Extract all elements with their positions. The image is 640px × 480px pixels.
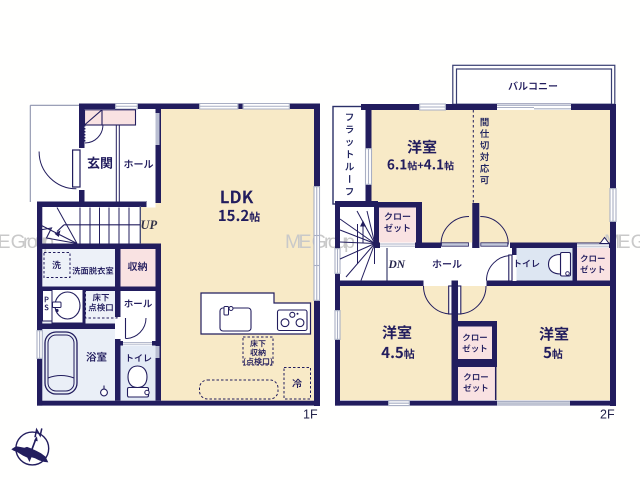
svg-text:1F: 1F <box>303 407 318 421</box>
svg-text:DN: DN <box>388 259 406 271</box>
svg-text:ME Group: ME Group <box>604 231 640 253</box>
svg-text:ME Group: ME Group <box>0 231 54 253</box>
svg-text:UP: UP <box>141 218 158 232</box>
svg-text:2F: 2F <box>600 407 615 421</box>
